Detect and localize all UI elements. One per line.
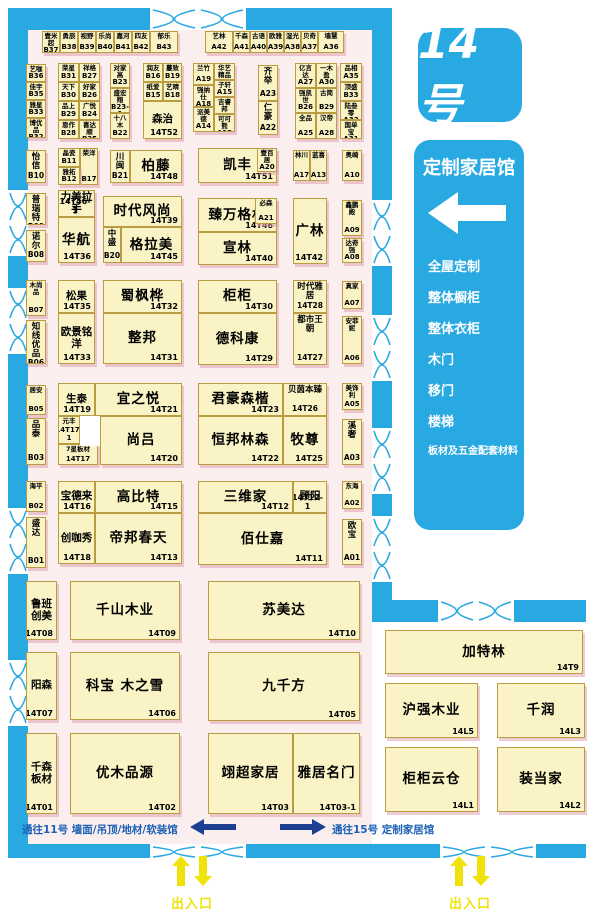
booth-name: 千森板材 (27, 762, 56, 784)
booth-id: 14T17 (66, 456, 90, 463)
booth-14T02: 优木品源14T02 (70, 733, 180, 814)
booth-id: 14T33 (63, 354, 91, 362)
booth-id: B18 (165, 92, 180, 99)
booth-id: B23-1 (111, 104, 129, 113)
booth-14T20: 尚吕14T20 (100, 416, 182, 465)
booth-A32: 陆叁零A32 (340, 101, 362, 120)
booth-name: 郁乐 (158, 33, 171, 40)
booth-name: 广悦 (83, 103, 96, 110)
booth-name: 科宝 木之雪 (86, 679, 164, 693)
booth-name: 创咖秀 (61, 533, 93, 544)
category-item: 整体衣柜 (428, 318, 524, 337)
booth-id: 14T40 (245, 255, 273, 263)
booth-A42: 艺林A42 (205, 31, 233, 53)
booth-id: A07 (344, 300, 359, 307)
booth-name: 装当家 (519, 772, 563, 786)
booth-id: 14T21 (150, 406, 178, 414)
booth-id: B21 (112, 172, 128, 180)
booth-id: A22 (260, 124, 276, 132)
booth-id: B38 (61, 44, 76, 51)
category-item: 整体橱柜 (428, 287, 524, 306)
booth-id: 14T09 (148, 630, 176, 638)
booth-name: 恒邦林森 (212, 433, 270, 447)
booth-id: 14T16 (63, 503, 91, 511)
booth-name: 必森 (260, 200, 273, 207)
booth-B43: 郁乐B43 (150, 31, 178, 53)
door (372, 315, 392, 381)
booth-A27: 亿言达A27 (295, 63, 316, 88)
booth-id: B26 (82, 92, 97, 99)
booth-id: 14L3 (559, 728, 581, 736)
booth-name: 齐举 (260, 68, 276, 86)
booth-B40: 乐尚B40 (96, 31, 114, 53)
booth-name: 诺尔 (28, 233, 44, 251)
booth-name: 喜达顺 (81, 122, 98, 136)
booth-name: 强纳仕 (195, 87, 212, 101)
booth-name: 德科康 (216, 332, 260, 346)
booth-B23-1: 盛宏翔B23-1 (110, 88, 130, 113)
booth-14T30: 柜柜14T30 (198, 280, 277, 313)
booth-14T03-1: 雅居名门14T03-1 (293, 733, 360, 814)
booth-name: 普瑞特 (28, 196, 44, 223)
booth-name: 华航 (62, 233, 91, 247)
booth-name: 一木盈 (318, 65, 335, 79)
booth-name: 安菲妮 (344, 318, 360, 332)
booth-id: 14L5 (452, 728, 474, 736)
booth-id: 14T46-1 (59, 198, 91, 215)
door (150, 8, 246, 30)
door (372, 428, 392, 494)
booth-B12: 雅拓B12 (58, 167, 80, 185)
booth-id: 14T51 (245, 173, 273, 181)
booth-name: 林川 (295, 152, 308, 159)
booth-14T27: 都市王朝14T27 (293, 313, 327, 365)
booth-id: 14T05 (328, 711, 356, 719)
booth-id: A31 (343, 136, 358, 139)
booth-id: B05 (28, 406, 43, 413)
booth-id: A08 (344, 254, 359, 261)
booth-id: B29 (319, 104, 334, 111)
empty-cell (80, 416, 100, 446)
booth-name: 森治 (152, 114, 173, 125)
booth-14T25: 牧尊14T25 (283, 416, 327, 465)
booth-id: 14T07 (26, 710, 53, 718)
booth-B30: 天下B30 (58, 82, 79, 101)
door (8, 190, 28, 256)
booth-A18: 强纳仕A18 (193, 85, 214, 107)
booth-14T01: 千森板材14T01 (26, 733, 57, 814)
booth-id: 14T12-1 (293, 494, 323, 511)
booth-name: 沪强木业 (403, 703, 461, 717)
entrance-label: 出入口 (154, 893, 230, 912)
booth-B26: 强凯世B26 (295, 88, 316, 113)
booth-B10: 怡信B10 (26, 150, 46, 183)
arrow-to-hall15-icon (280, 819, 326, 835)
category-item: 全屋定制 (428, 256, 524, 275)
booth-name: 天下 (62, 84, 75, 91)
booth-14T48: 柏藤14T48 (130, 150, 182, 183)
booth-id: A23 (260, 90, 276, 98)
booth-B09: 普瑞特B09 (26, 193, 46, 225)
booth-name: 四友 (135, 33, 148, 40)
booth-14T16: 宝德来14T16 (58, 481, 95, 513)
booth-14T19: 生泰14T19 (58, 383, 95, 416)
booth-14T17-1: 元丰14T17-1 (58, 416, 80, 444)
passage-to-hall11-label: 通往11号 墙面/吊顶/地材/软装馆 (22, 822, 178, 837)
booth-14T28: 时代雅居14T28 (293, 280, 327, 313)
booth-14T18: 创咖秀14T18 (58, 513, 95, 564)
booth-A23: 齐举A23 (258, 65, 278, 101)
booth-B38: 勇辰B38 (60, 31, 78, 53)
booth-id: A03 (344, 454, 360, 462)
booth-name: 壹百居 (259, 150, 275, 164)
booth-id: 14T32 (150, 303, 178, 311)
arrow-to-hall11-icon (190, 819, 236, 835)
booth-A13: 蓝喜A13 (310, 150, 327, 181)
booth-A36: 墙慧A36 (318, 31, 344, 53)
booth-id: 14T11 (295, 555, 323, 563)
booth-id: A40 (251, 44, 266, 51)
booth-id: B40 (97, 44, 112, 51)
hall-category-panel: 定制家居馆 全屋定制 整体橱柜 整体衣柜 木门 移门 楼梯 板材及五金配套材料 (414, 140, 524, 530)
booth-B33: 顶盛B33 (340, 82, 362, 101)
booth-name: 鲁班创美 (27, 599, 56, 621)
booth-B02: 海平B02 (26, 481, 46, 512)
booth-name: 嘉河 (117, 33, 130, 40)
booth-B41: 嘉河B41 (114, 31, 132, 53)
booth-id: 14T20 (150, 455, 178, 463)
booth-id: 14T36 (63, 253, 91, 261)
booth-A39: 欧雅A39 (267, 31, 284, 53)
booth-name: 恩作 (62, 122, 75, 129)
booth-id: A35 (343, 73, 358, 80)
booth-14L1: 柜柜云仓14L1 (385, 747, 478, 812)
booth-B06: 知线优品B06 (26, 320, 46, 364)
booth-name: 壹米超 (44, 33, 58, 47)
booth-A41: 千森A41 (233, 31, 250, 53)
booth-name: 国单宝 (342, 122, 360, 136)
booth-id: B23 (112, 79, 127, 86)
booth-B33: 雅星B33 (26, 100, 46, 118)
booth-name: 荣星 (62, 65, 75, 72)
booth-id: B06 (28, 359, 44, 364)
booth-A17: 林川A17 (293, 150, 310, 181)
booth-id: B12 (61, 176, 76, 183)
booth-name: 全品 (299, 115, 312, 122)
booth-14T07: 阳森14T07 (26, 652, 57, 720)
booth-id: 14T52 (150, 129, 178, 137)
door (438, 600, 514, 622)
booth-14L5: 沪强木业14L5 (385, 683, 478, 738)
booth-name: 帝邦春天 (110, 531, 168, 545)
booth-name: 真家 (346, 283, 359, 290)
booth-name: 千润 (527, 703, 556, 717)
booth-id: A05 (344, 401, 359, 408)
booth-14T10: 苏美达14T10 (208, 581, 360, 640)
booth-id: A09 (344, 227, 359, 234)
booth-id: B15 (145, 92, 160, 99)
booth-B20: 中盛B20 (103, 227, 121, 263)
booth-A37: 贝奇A37 (301, 31, 318, 53)
door (8, 288, 28, 354)
booth-14T23: 君豪森楷14T23 (198, 383, 283, 416)
booth-id: B09 (28, 223, 44, 225)
booth-B27: 祥格B27 (79, 63, 100, 82)
booth-A21: 必森A21 (255, 198, 277, 224)
booth-name: 欧宝 (344, 522, 360, 540)
booth-A07: 真家A07 (342, 281, 362, 309)
booth-name: 博优品 (28, 120, 44, 134)
booth-A20: 壹百居A20 (257, 148, 277, 172)
booth-B19: 蔓致B19 (163, 63, 182, 82)
booth-name: 奥崎 (346, 152, 359, 159)
booth-name: 派美德 (195, 109, 212, 123)
booth-id: A13 (311, 172, 326, 179)
booth-name: 盛达 (28, 520, 44, 538)
booth-A12: 可可熊A12 (214, 114, 235, 132)
booth-name: 盛宏翔 (112, 90, 128, 104)
booth-name: 顶盛 (345, 84, 358, 91)
booth-id: A30 (319, 79, 334, 86)
left-arrow-icon (428, 190, 508, 236)
booth-id: B41 (115, 44, 130, 51)
booth-name: 湿光 (286, 33, 299, 40)
booth-B29: 品上B29 (58, 101, 79, 120)
booth-name: 润友 (147, 65, 160, 72)
booth-id: A01 (344, 554, 360, 562)
booth-id: A12 (217, 130, 232, 132)
booth-14T39: 时代风尚14T39 (103, 196, 182, 227)
booth-name: 加特林 (462, 645, 506, 659)
booth-name: 生泰 (66, 394, 87, 405)
booth-id: B33 (343, 92, 358, 99)
booth-name: 贝奇 (303, 33, 316, 40)
category-item: 板材及五金配套材料 (428, 442, 524, 457)
passage-to-hall15-label: 通往15号 定制家居馆 (332, 822, 434, 837)
booth-B18: 艺晴B18 (163, 82, 182, 101)
booth-name: 千森 (235, 33, 248, 40)
booth-B23: 对家高B23 (110, 63, 130, 88)
booth-B05: 居安B05 (26, 385, 46, 415)
booth-14T12-1: 顾阳14T12-1 (293, 481, 327, 513)
booth-name: 苏美达 (262, 603, 306, 617)
booth-name: 蔓致 (166, 65, 179, 72)
booth-14T46-1: 力美拉手14T46-1 (58, 190, 95, 217)
booth-id: A27 (298, 79, 313, 86)
booth-id: A02 (344, 500, 359, 507)
booth-name: 雅居名门 (298, 766, 356, 780)
entrance-label: 出入口 (432, 893, 508, 912)
booth-name: 汉帝 (320, 115, 333, 122)
booth-B35: 佳宇B35 (26, 82, 46, 100)
booth-id: B02 (28, 503, 43, 510)
booth-name: 都市王朝 (295, 316, 325, 334)
booth-name: 欧雅 (269, 33, 282, 40)
booth-B03: 品泰B03 (26, 418, 46, 465)
booth-name: 格拉美 (130, 238, 174, 252)
booth-name: 美饰利 (344, 385, 360, 399)
booth-name: 元丰 (63, 418, 76, 425)
booth-name: 木尚品 (28, 282, 44, 296)
booth-name: 好家 (83, 84, 96, 91)
booth-14T33: 欧景铭洋14T33 (58, 313, 95, 364)
up-down-arrows-icon (172, 856, 212, 886)
booth-B37: 壹米超B37 (42, 31, 60, 53)
category-item: 移门 (428, 380, 524, 399)
booth-id: 14T15 (150, 503, 178, 511)
booth-A14: 派美德A14 (193, 107, 214, 132)
booth-name: 阳森 (31, 680, 52, 691)
booth-id: 14T39 (150, 217, 178, 225)
booth-B39: 视野B39 (78, 31, 96, 53)
booth-14T32: 蜀枫桦14T32 (103, 280, 182, 313)
booth-B36: 艺咖B36 (26, 64, 46, 82)
booth-B26: 好家B26 (79, 82, 100, 101)
booth-id: A39 (268, 44, 283, 51)
booth-id: 14L2 (559, 802, 581, 810)
booth-A05: 美饰利A05 (342, 383, 362, 410)
booth-id: 14T35 (63, 303, 91, 311)
booth-id: B43 (156, 44, 171, 51)
booth-id: 14T03-1 (319, 804, 356, 812)
booth-B28: 恩作B28 (58, 120, 79, 139)
booth-name: 时代雅居 (295, 283, 325, 301)
booth-14T13: 帝邦春天14T13 (95, 513, 182, 564)
booth-B17: 荣洋B17 (80, 148, 98, 185)
booth-A31: 国单宝A31 (340, 120, 362, 139)
up-down-arrows-icon (450, 856, 490, 886)
booth-id: 14T28 (297, 302, 323, 310)
booth-id: B07 (28, 307, 43, 314)
category-item: 楼梯 (428, 411, 524, 430)
booth-A38: 湿光A38 (284, 31, 301, 53)
booth-name: 乐尚 (99, 33, 112, 40)
booth-14T29: 德科康14T29 (198, 313, 277, 365)
booth-id: B26 (298, 104, 313, 111)
booth-name: 广林 (296, 224, 325, 238)
booth-14T36: 华航14T36 (58, 217, 95, 263)
booth-14T22: 恒邦林森14T22 (198, 416, 283, 465)
hall-number-badge: 14号 (418, 28, 522, 122)
booth-name: 优木品源 (96, 766, 154, 780)
booth-14L2: 装当家14L2 (497, 747, 585, 812)
booth-B21: 川闽B21 (110, 150, 130, 183)
booth-A15: 子轩A15 (214, 80, 235, 97)
booth-id: B42 (133, 44, 148, 51)
booth-name: 佰仕嘉 (241, 532, 285, 546)
booth-14T42: 广林14T42 (293, 198, 327, 264)
booth-id: 14T45 (150, 253, 178, 261)
booth-id: A28 (319, 130, 334, 137)
booth-name: 兰竹 (197, 65, 210, 72)
booth-name: 品泰 (28, 421, 44, 439)
booth-id: A36 (323, 44, 338, 51)
booth-name: 翊超家居 (222, 766, 280, 780)
booth-A16: 华艺精品A16 (214, 63, 235, 80)
booth-id: 14T27 (297, 354, 323, 362)
booth-id: B31 (61, 73, 76, 80)
hall-name-title: 定制家居馆 (414, 154, 524, 180)
booth-name: 居安 (30, 387, 43, 394)
booth-A03: 溪奢A03 (342, 419, 362, 465)
booth-name: 纸爱 (147, 84, 160, 91)
booth-id: 14L1 (452, 802, 474, 810)
booth-name: 柜柜云仓 (403, 772, 461, 786)
booth-14T31: 整邦14T31 (103, 313, 182, 364)
booth-id: A42 (211, 44, 226, 51)
booth-id: A17 (294, 172, 309, 179)
booth-id: B25 (82, 136, 97, 139)
booth-B24: 广悦B24 (79, 101, 100, 120)
booth-id: B08 (28, 251, 44, 259)
booth-A06: 安菲妮A06 (342, 316, 362, 364)
door (372, 200, 392, 266)
booth-id: A06 (344, 355, 359, 362)
booth-id: B28 (61, 130, 76, 137)
booth-14T11: 佰仕嘉14T11 (198, 513, 327, 565)
booth-A09: 鑫鹏殿A09 (342, 200, 362, 236)
booth-name: 怡信 (28, 153, 44, 171)
booth-A28: 汉帝A28 (316, 113, 337, 139)
booth-id: B03 (28, 454, 44, 462)
booth-name: 蓝喜 (312, 152, 325, 159)
booth-name: 品上 (62, 103, 75, 110)
booth-B29: 古简B29 (316, 88, 337, 113)
booth-name: 勇辰 (63, 33, 76, 40)
booth-14T17: 7星板材14T17 (58, 444, 98, 465)
booth-name: 凯丰 (223, 158, 252, 172)
booth-14T15: 高比特14T15 (95, 481, 182, 513)
booth-id: A25 (298, 130, 313, 137)
booth-id: 14T17-1 (58, 427, 80, 442)
booth-name: 溪奢 (344, 422, 360, 440)
booth-id: A21 (258, 215, 273, 222)
door (8, 508, 28, 574)
booth-id: B39 (79, 44, 94, 51)
booth-name: 荣洋 (83, 150, 96, 157)
booth-id: 14T30 (245, 303, 273, 311)
booth-B25: 喜达顺B25 (79, 120, 100, 139)
booth-name: 晶瓷 (63, 150, 76, 157)
booth-B42: 四友B42 (132, 31, 150, 53)
booth-B11: 晶瓷B11 (58, 148, 80, 167)
booth-A08: 达奇强A08 (342, 238, 362, 263)
booth-id: B16 (145, 73, 160, 80)
booth-14T45: 格拉美14T45 (121, 227, 182, 263)
booth-name: 仁豪 (260, 104, 276, 122)
booth-B31: 荣星B31 (58, 63, 79, 82)
booth-name: 整邦 (128, 331, 157, 345)
booth-id: 14T31 (150, 354, 178, 362)
booth-name: 对家高 (112, 65, 128, 79)
booth-A02: 东海A02 (342, 481, 362, 509)
booth-A30: 一木盈A30 (316, 63, 337, 88)
booth-B07: 木尚品B07 (26, 280, 46, 316)
booth-name: 古简 (320, 90, 333, 97)
booth-id: 14T48 (150, 173, 178, 181)
booth-14T06: 科宝 木之雪14T06 (70, 652, 180, 720)
booth-name: 宝德来 (61, 491, 93, 502)
exhibition-floor-plan: 壹米超B37勇辰B38视野B39乐尚B40嘉河B41四友B42郁乐B43艺林A4… (0, 0, 600, 904)
booth-14T35: 松果14T35 (58, 280, 95, 313)
booth-name: 中盛 (105, 230, 119, 248)
booth-id: B22 (112, 130, 127, 137)
booth-name: 古语 (252, 33, 265, 40)
booth-id: 14T10 (328, 630, 356, 638)
booth-id: B24 (82, 111, 97, 118)
booth-id: A38 (285, 44, 300, 51)
booth-name: 贝茵本臻 (288, 386, 322, 395)
